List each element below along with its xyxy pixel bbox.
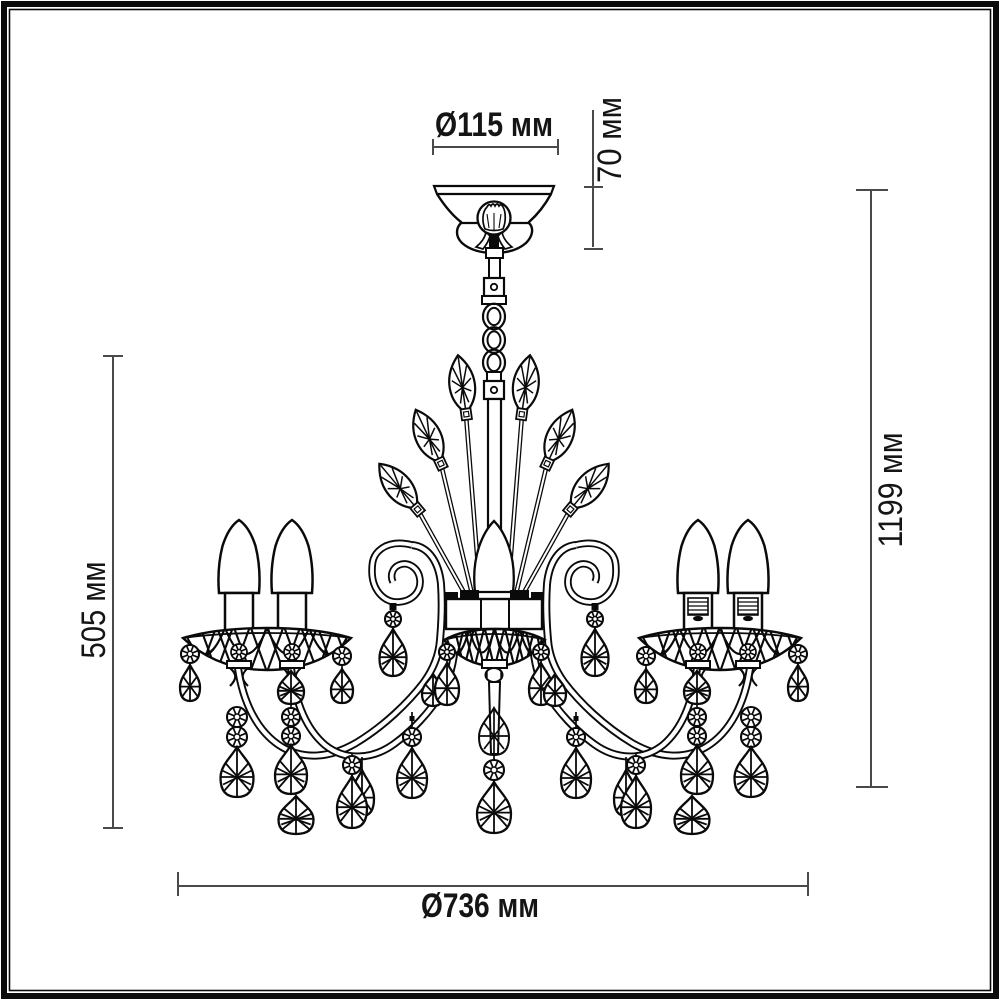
svg-text:505 мм: 505 мм: [75, 562, 113, 659]
svg-text:70 мм: 70 мм: [591, 97, 629, 183]
svg-text:Ø115 мм: Ø115 мм: [435, 106, 553, 144]
svg-text:Ø736 мм: Ø736 мм: [421, 887, 539, 925]
svg-text:1199 мм: 1199 мм: [872, 433, 910, 548]
